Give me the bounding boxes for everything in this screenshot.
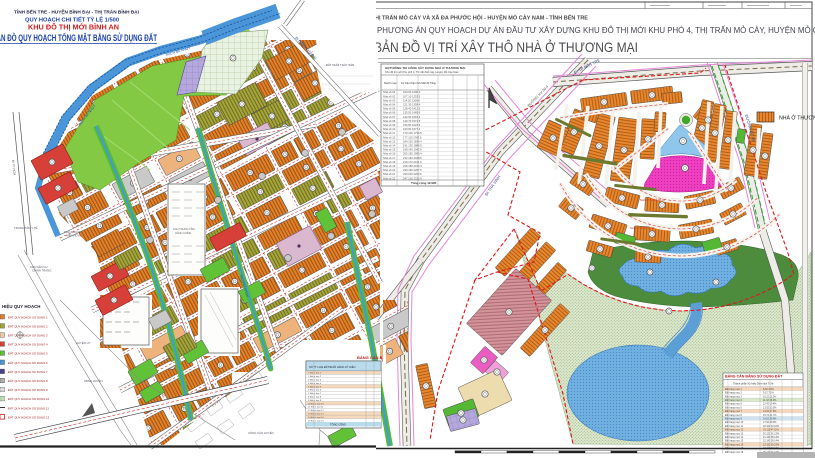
svg-text:240.200 2260 6: 240.200 2260 6 [403, 172, 422, 176]
svg-text:HIỆU QUY HOẠCH: HIỆU QUY HOẠCH [2, 304, 40, 309]
svg-text:Ký hiệu Diện tích Mật độ: Ký hiệu Diện tích Mật độ Tầng [401, 81, 436, 85]
svg-text:8 Đất ở loại 8: 8 Đất ở loại 8 [308, 396, 322, 399]
svg-text:KHU ĐÔ THỊ MỚI BÌNH AN: KHU ĐÔ THỊ MỚI BÌNH AN [28, 23, 119, 32]
svg-text:Đất hạng mục 12: Đất hạng mục 12 [725, 429, 744, 432]
svg-text:135.50 1465 6: 135.50 1465 6 [403, 111, 421, 115]
svg-text:14 Đất ở loại 14: 14 Đất ở loại 14 [308, 416, 324, 419]
svg-text:Đất hạng mục 6: Đất hạng mục 6 [725, 406, 743, 409]
svg-text:205.150 1995 4: 205.150 1995 4 [403, 152, 422, 156]
svg-text:Nhà số 17: Nhà số 17 [383, 156, 396, 160]
svg-text:ĐẤT QUY HOẠCH SỬ DỤNG 7: ĐẤT QUY HOẠCH SỬ DỤNG 7 [8, 369, 48, 374]
svg-text:ĐẤT QUY HOẠCH SỬ DỤNG 3: ĐẤT QUY HOẠCH SỬ DỤNG 3 [8, 333, 48, 338]
svg-text:Nhà số 16: Nhà số 16 [383, 152, 396, 156]
svg-text:ĐẤT QUY HOẠCH SỬ DỤNG 12: ĐẤT QUY HOẠCH SỬ DỤNG 12 [8, 414, 50, 419]
svg-text:ĐẤT QUY HOẠCH SỬ DỤNG 5: ĐẤT QUY HOẠCH SỬ DỤNG 5 [8, 351, 48, 356]
svg-text:Nhà số 12: Nhà số 12 [383, 135, 396, 139]
svg-text:Đất hạng mục 9: Đất hạng mục 9 [725, 418, 743, 421]
svg-text:Đất hạng mục 13: Đất hạng mục 13 [725, 432, 744, 435]
svg-text:ĐẤT QUY HOẠCH SỬ DỤNG 11: ĐẤT QUY HOẠCH SỬ DỤNG 11 [8, 405, 49, 410]
svg-text:Khu đô thị mới Khu phố 4, Thị: Khu đô thị mới Khu phố 4, Thị trấn Mỏ Cà… [385, 70, 459, 74]
svg-text:BẢN ĐỒ VỊ TRÍ XÂY THÔ NHÀ Ở TH: BẢN ĐỒ VỊ TRÍ XÂY THÔ NHÀ Ở THƯƠNG MẠI [374, 38, 638, 55]
svg-text:3 Đất ở loại 3: 3 Đất ở loại 3 [308, 379, 322, 382]
svg-text:Nhà số 03: Nhà số 03 [383, 98, 396, 102]
svg-text:ĐẤT QUY HOẠCH SỬ DỤNG 10: ĐẤT QUY HOẠCH SỬ DỤNG 10 [8, 396, 50, 401]
svg-text:ĐẤT QUY HOẠCH SỬ DỤNG 6: ĐẤT QUY HOẠCH SỬ DỤNG 6 [8, 360, 48, 365]
svg-text:23.152 63.15%: 23.152 63.15% [763, 443, 780, 446]
svg-text:Đất hạng mục 5: Đất hạng mục 5 [725, 403, 743, 406]
svg-text:177.110 1783 6: 177.110 1783 6 [403, 135, 422, 139]
svg-text:18.102 43.10%: 18.102 43.10% [763, 425, 780, 428]
svg-text:15 Đất ở loại 15: 15 Đất ở loại 15 [308, 419, 324, 422]
svg-text:PHƯƠNG ÁN QUY HOẠCH DỰ ÁN ĐẦU: PHƯƠNG ÁN QUY HOẠCH DỰ ÁN ĐẦU TƯ XÂY DỰN… [377, 24, 815, 35]
svg-text:ĐẤT QUY HOẠCH SỬ DỤNG 2: ĐẤT QUY HOẠCH SỬ DỤNG 2 [8, 323, 48, 328]
svg-text:Nhà số 15: Nhà số 15 [383, 148, 396, 152]
svg-text:Nhà số 10: Nhà số 10 [383, 127, 396, 131]
svg-text:Thành phần Ký hiệu Diện: Thành phần Ký hiệu Diện tích Tỷ lệ [733, 382, 774, 386]
svg-text:Nhà số 21: Nhà số 21 [383, 172, 396, 176]
svg-text:Nhà số 19: Nhà số 19 [383, 164, 396, 168]
svg-text:212.160 2048 5: 212.160 2048 5 [403, 156, 422, 160]
svg-text:Đất hạng mục 16: Đất hạng mục 16 [725, 443, 744, 446]
svg-text:Nhà số 05: Nhà số 05 [383, 107, 396, 111]
svg-text:184.120 1836 4: 184.120 1836 4 [403, 139, 422, 143]
svg-text:HỊ TRẤN MỎ CÀY VÀ XÃ ĐA PHƯỚC: HỊ TRẤN MỎ CÀY VÀ XÃ ĐA PHƯỚC HỘI - HUYỆ… [375, 14, 588, 22]
svg-text:163.90 1677 4: 163.90 1677 4 [403, 127, 421, 131]
svg-text:Nhà số 18: Nhà số 18 [383, 160, 396, 164]
svg-text:114.20 1306 6: 114.20 1306 6 [403, 98, 420, 102]
svg-text:HIỆN HỮU: HIỆN HỮU [66, 232, 80, 237]
svg-text:BẢNG CÂN BẰNG SỬ DỤNG ĐẤT: BẢNG CÂN BẰNG SỬ DỤNG ĐẤT [725, 374, 783, 379]
svg-text:TRUNG TÂM Y TẾ: TRUNG TÂM Y TẾ [14, 225, 38, 230]
svg-text:Nhà số 07: Nhà số 07 [383, 115, 396, 119]
svg-text:170.100 1730 5: 170.100 1730 5 [403, 131, 422, 135]
svg-text:ĐẤT QUY HOẠCH SỬ DỤNG 4: ĐẤT QUY HOẠCH SỬ DỤNG 4 [8, 342, 48, 347]
svg-text:HỢP ĐỒNG THI CÔNG XÂY DỰNG NHÀ: HỢP ĐỒNG THI CÔNG XÂY DỰNG NHÀ Ở THƯƠNG … [385, 65, 466, 70]
svg-text:10 Đất ở loại 10: 10 Đất ở loại 10 [308, 402, 324, 405]
svg-text:219.170 2101 6: 219.170 2101 6 [403, 160, 422, 164]
svg-text:156.80 1624 6: 156.80 1624 6 [403, 123, 421, 127]
svg-text:121.30 1359 4: 121.30 1359 4 [403, 103, 421, 107]
svg-text:5 Đất ở loại 5: 5 Đất ở loại 5 [308, 385, 322, 388]
svg-text:Đất hạng mục 4: Đất hạng mục 4 [725, 399, 743, 402]
svg-text:ĐẤT QUY HOẠCH SỬ DỤNG 1: ĐẤT QUY HOẠCH SỬ DỤNG 1 [8, 314, 48, 319]
svg-text:Nhà số 06: Nhà số 06 [383, 111, 396, 115]
svg-text:107.10 1253 5: 107.10 1253 5 [403, 94, 421, 98]
svg-text:Đất hạng mục 1: Đất hạng mục 1 [725, 388, 743, 391]
svg-text:20.122 51.12%: 20.122 51.12% [763, 432, 780, 435]
svg-text:ĐẤT NUÔI THỦY SẢN: ĐẤT NUÔI THỦY SẢN [326, 62, 354, 67]
svg-text:149.70 1571 5: 149.70 1571 5 [403, 119, 421, 123]
svg-text:ĐẤT QUY HOẠCH SỬ DỤNG 8: ĐẤT QUY HOẠCH SỬ DỤNG 8 [8, 378, 48, 383]
svg-text:Đất hạng mục 14: Đất hạng mục 14 [725, 436, 744, 439]
svg-text:Nhà số 02: Nhà số 02 [383, 94, 396, 98]
svg-text:Đất hạng mục 3: Đất hạng mục 3 [725, 395, 743, 398]
svg-text:CỔNG VÀO HUYỆN: CỔNG VÀO HUYỆN [248, 430, 274, 435]
svg-text:198.140 1942 6: 198.140 1942 6 [403, 148, 422, 152]
svg-text:Nhà số 11: Nhà số 11 [383, 131, 396, 135]
svg-text:100.00 1200 4: 100.00 1200 4 [403, 90, 421, 94]
svg-text:191.130 1889 5: 191.130 1889 5 [403, 144, 422, 148]
svg-text:21.132 55.13%: 21.132 55.13% [763, 436, 780, 439]
svg-text:142.60 1518 4: 142.60 1518 4 [403, 115, 421, 119]
svg-text:Tổng cộng 42.995: Tổng cộng 42.995 [411, 181, 437, 185]
svg-text:Đất hạng mục 7: Đất hạng mục 7 [725, 410, 743, 413]
svg-text:Nhà số 09: Nhà số 09 [383, 123, 396, 127]
svg-text:8.02 3.0%: 8.02 3.0% [763, 388, 775, 391]
svg-text:Đất hạng mục 11: Đất hạng mục 11 [725, 425, 744, 428]
svg-text:Nhà số 08: Nhà số 08 [383, 119, 396, 123]
svg-text:Danh mục: Danh mục [384, 81, 397, 85]
svg-text:HUYỆN ỦY: HUYỆN ỦY [76, 340, 91, 345]
svg-text:22.142 59.14%: 22.142 59.14% [763, 440, 780, 443]
svg-text:233.190 2207 5: 233.190 2207 5 [403, 168, 422, 172]
svg-text:Nhà số 14: Nhà số 14 [383, 144, 396, 148]
svg-text:Đất hạng mục 8: Đất hạng mục 8 [725, 414, 743, 417]
svg-text:ĐẤT QUY HOẠCH SỬ DỤNG 9: ĐẤT QUY HOẠCH SỬ DỤNG 9 [8, 387, 48, 392]
svg-text:NHÀ Ở THƯƠNG M: NHÀ Ở THƯƠNG M [779, 115, 815, 122]
svg-text:BẢNG CÂN B: BẢNG CÂN B [357, 355, 383, 360]
svg-text:CHỈNH TRANG: CHỈNH TRANG [32, 267, 51, 272]
svg-text:9 Đất ở loại 9: 9 Đất ở loại 9 [308, 399, 322, 402]
svg-text:13 Đất ở loại 13: 13 Đất ở loại 13 [308, 413, 324, 416]
svg-text:Nhà số 13: Nhà số 13 [383, 139, 396, 143]
svg-text:Nhà số 20: Nhà số 20 [383, 168, 396, 172]
svg-text:226.180 2154 4: 226.180 2154 4 [403, 164, 422, 168]
svg-text:4 Đất ở loại 4: 4 Đất ở loại 4 [308, 382, 322, 385]
svg-text:BẢN ĐỒ QUY HOẠCH TỔNG MẶT BẰNG: BẢN ĐỒ QUY HOẠCH TỔNG MẶT BẰNG SỬ DỤNG Đ… [0, 32, 157, 43]
svg-text:Đất hạng mục 10: Đất hạng mục 10 [725, 421, 744, 424]
svg-text:Đất hạng mục 2: Đất hạng mục 2 [725, 392, 743, 395]
svg-text:9.12 7.1%: 9.12 7.1% [763, 392, 775, 395]
svg-text:Đất hạng mục 18: Đất hạng mục 18 [725, 451, 744, 454]
svg-text:19.112 47.11%: 19.112 47.11% [763, 429, 780, 432]
svg-text:Đất hạng mục 15: Đất hạng mục 15 [725, 440, 744, 443]
svg-text:HÀNH CHÍNH: HÀNH CHÍNH [175, 231, 191, 235]
svg-text:Nhà số 01: Nhà số 01 [383, 90, 396, 94]
svg-text:UBND HUYỆN: UBND HUYỆN [84, 378, 103, 383]
svg-text:128.40 1412 5: 128.40 1412 5 [403, 107, 421, 111]
svg-text:Nhà số 04: Nhà số 04 [383, 103, 396, 107]
